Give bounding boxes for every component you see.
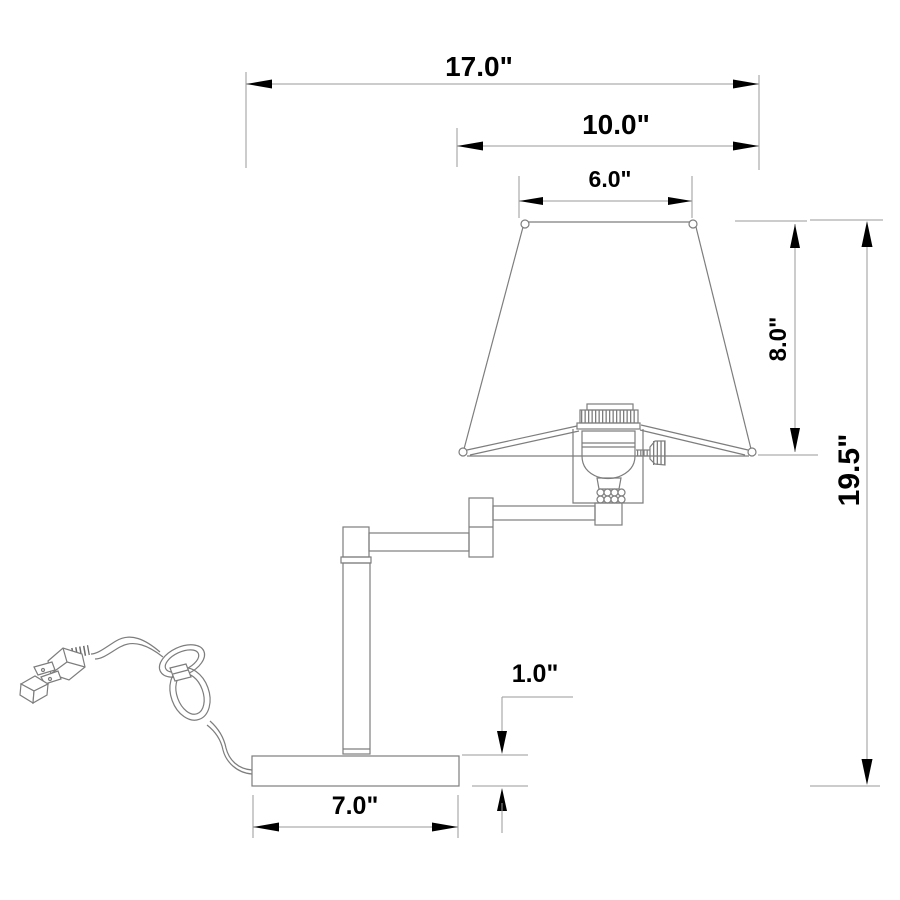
dimension-graphics (246, 72, 883, 838)
power-plug (20, 648, 89, 703)
socket-neck (597, 478, 621, 489)
pole-collar (341, 557, 371, 563)
finial-top-plate (587, 404, 633, 410)
dim-base-height-lines (462, 697, 573, 833)
arm-upper-bar (493, 506, 595, 520)
lamp-base (252, 756, 459, 786)
dimension-label-shade-height: 8.0" (767, 317, 791, 362)
arm-lower-bar (369, 533, 469, 551)
shade-corner-ring (689, 220, 697, 228)
swing-arm (341, 498, 622, 563)
dimension-label-shade-bottom-width: 10.0" (582, 111, 650, 139)
shade-corner-ring (459, 448, 467, 456)
arm-pole-joint (343, 527, 369, 557)
pole-and-base (252, 563, 459, 786)
lamp (20, 220, 756, 786)
socket-assembly (573, 404, 665, 503)
dimension-label-base-height: 1.0" (512, 662, 559, 687)
socket-switch-knob (636, 441, 665, 465)
dimension-label-overall-width: 17.0" (445, 53, 513, 81)
shade-flange (577, 423, 640, 429)
shade-corner-ring (748, 448, 756, 456)
lamp-shade (459, 220, 756, 456)
lamp-pole (343, 563, 370, 754)
shade-corner-ring (521, 220, 529, 228)
arm-socket-joint (595, 503, 622, 525)
knurled-nut (597, 489, 625, 503)
lamp-dimension-drawing: 17.0" 10.0" 6.0" 8.0" 19.5" 1.0" 7.0" (0, 0, 900, 900)
dimension-label-shade-top-width: 6.0" (589, 168, 632, 191)
socket-cup (582, 431, 635, 479)
power-cord (91, 637, 252, 774)
dim-overall-width-lines (246, 72, 759, 170)
dimension-label-base-width: 7.0" (332, 794, 379, 819)
dimension-label-overall-height: 19.5" (835, 434, 865, 507)
drawing-svg (0, 0, 900, 900)
